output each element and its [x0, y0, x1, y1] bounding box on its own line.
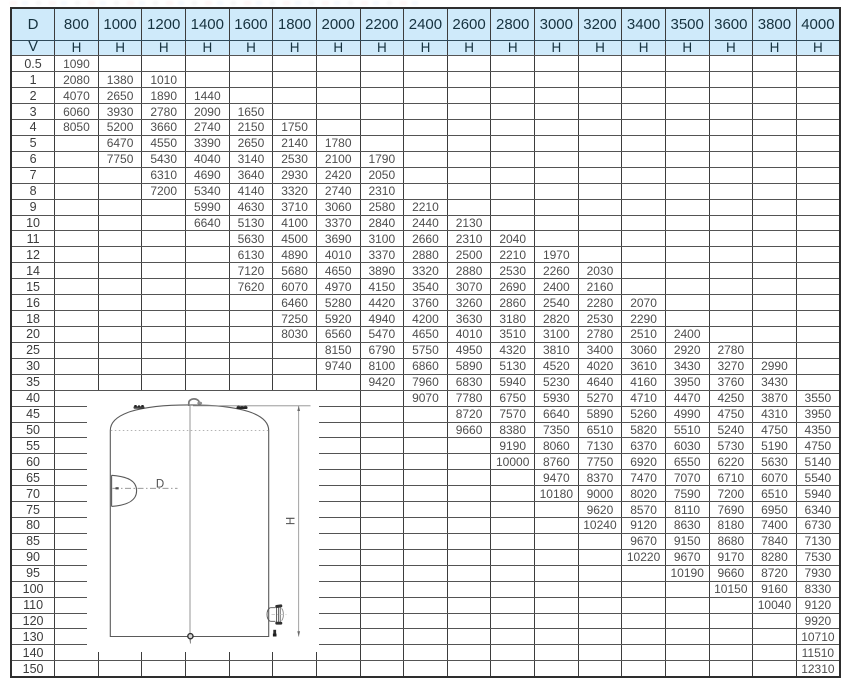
svg-text:D: D: [156, 479, 164, 491]
svg-text:H: H: [286, 517, 298, 525]
